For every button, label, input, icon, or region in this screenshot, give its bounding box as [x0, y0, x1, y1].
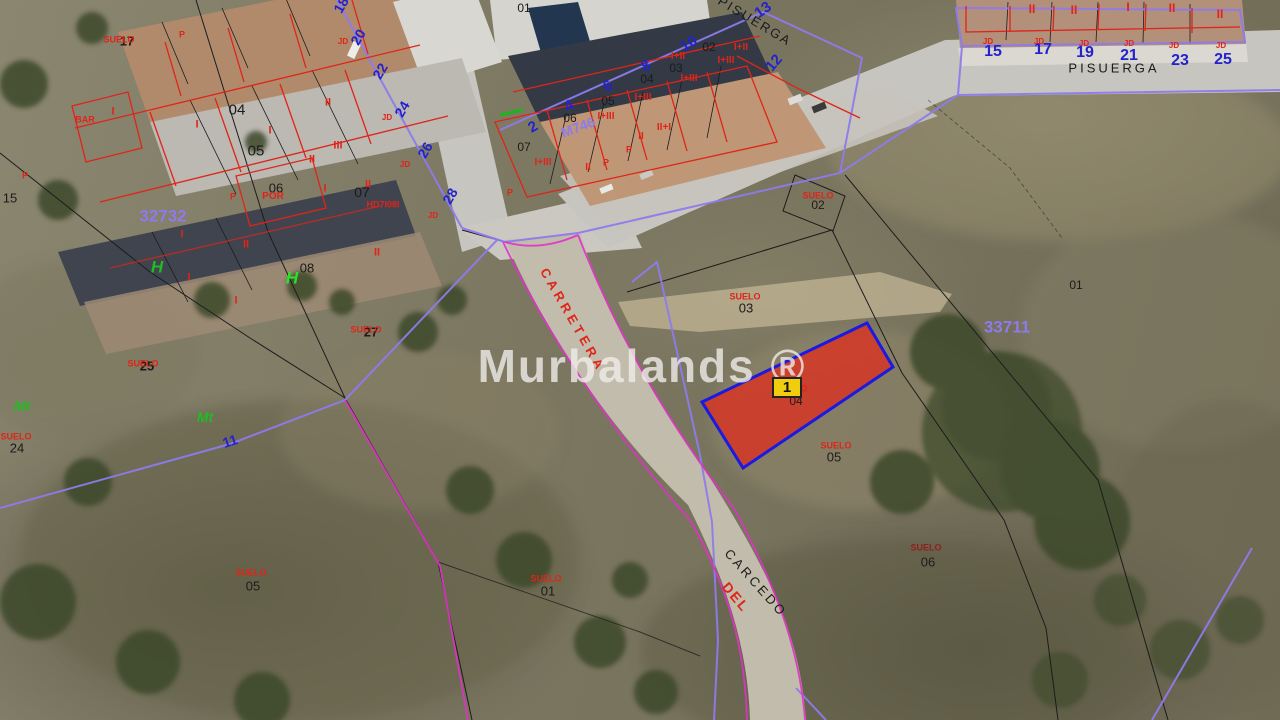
parcel-marker-badge[interactable]: 1: [772, 377, 802, 398]
cadastral-map: 151719212325131210864218202224262811PISU…: [0, 0, 1280, 720]
watermark: Murbalands ®: [478, 339, 807, 393]
